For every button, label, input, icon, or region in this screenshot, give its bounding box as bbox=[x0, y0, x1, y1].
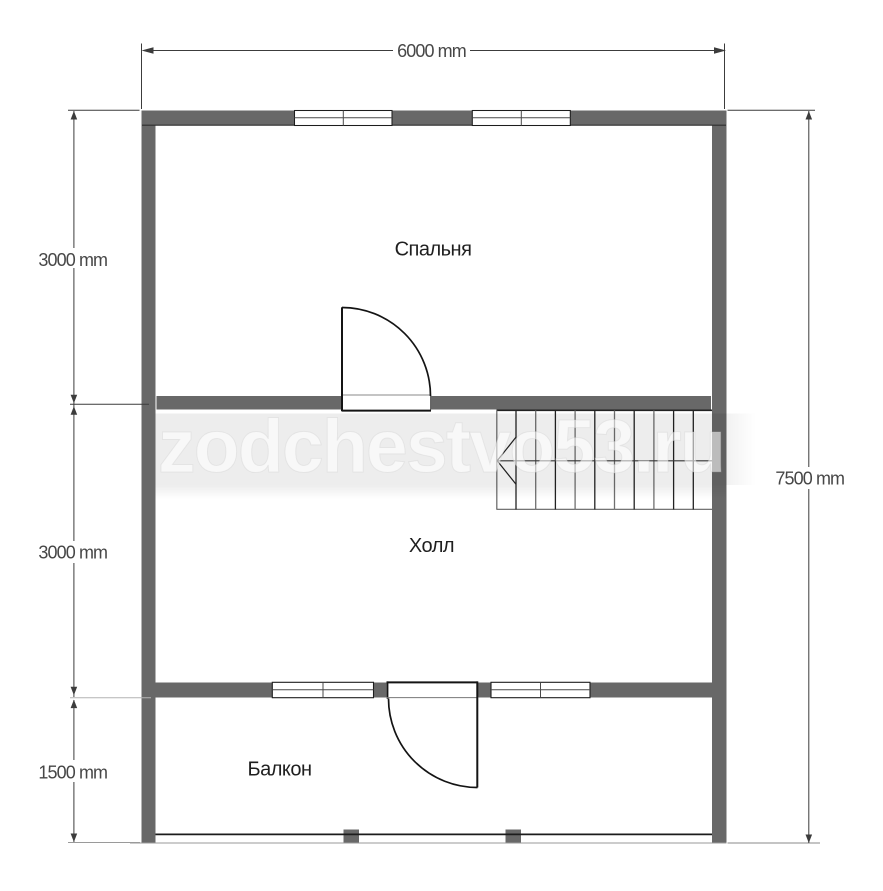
svg-text:3000 mm: 3000 mm bbox=[38, 250, 107, 270]
svg-text:6000 mm: 6000 mm bbox=[397, 41, 466, 61]
svg-text:Балкон: Балкон bbox=[247, 759, 311, 781]
svg-text:1500 mm: 1500 mm bbox=[38, 763, 107, 783]
svg-text:zodchestvo53.ru: zodchestvo53.ru bbox=[158, 404, 724, 488]
svg-text:Холл: Холл bbox=[409, 535, 454, 557]
svg-text:3000 mm: 3000 mm bbox=[38, 543, 107, 563]
svg-text:7500 mm: 7500 mm bbox=[775, 469, 844, 489]
svg-text:Спальня: Спальня bbox=[395, 239, 472, 261]
